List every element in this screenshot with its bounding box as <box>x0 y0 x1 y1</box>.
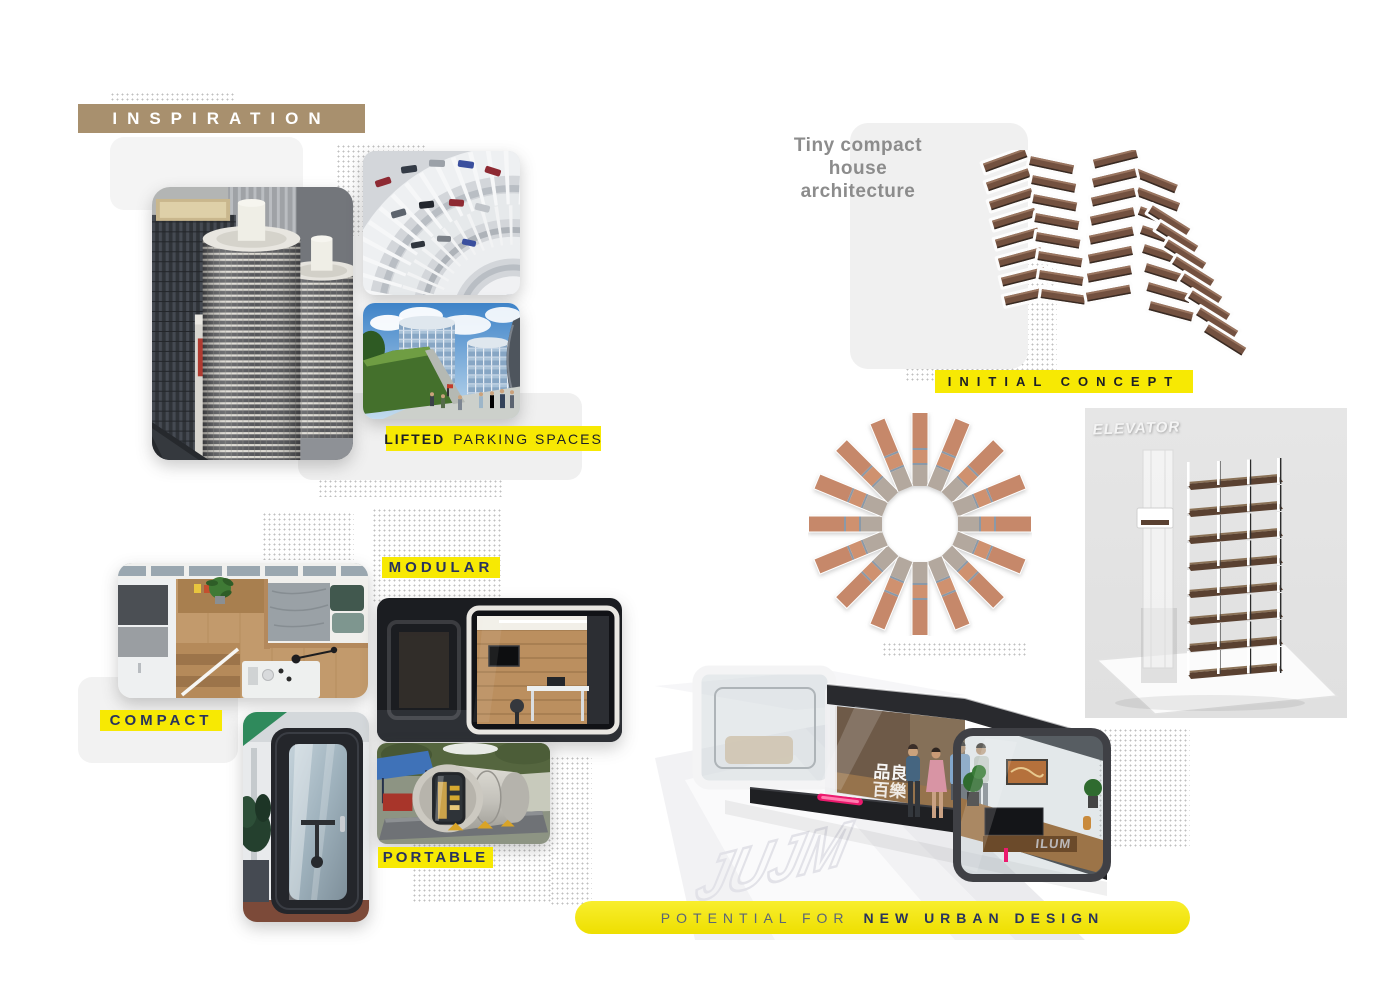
compact-label: COMPACT <box>100 710 222 731</box>
cjk-line-2: 百樂 <box>872 779 908 802</box>
booth-body <box>271 728 363 914</box>
lifted-label-bold: LIFTED <box>384 431 445 447</box>
container-home-illustration: JUJM 品良 <box>655 640 1200 940</box>
container-module-front <box>949 732 1107 878</box>
dot-texture <box>262 512 354 560</box>
phone-booth-illustration <box>243 712 369 922</box>
tiny-compact-note: Tiny compact house architecture <box>788 134 928 203</box>
container-module-back <box>697 670 832 785</box>
inspiration-section-banner: INSPIRATION <box>78 104 365 133</box>
stacked-units-illustration <box>952 150 1262 365</box>
render-initial-concept-stacks <box>952 150 1262 365</box>
elevator-label: ELEVATOR <box>1092 418 1182 438</box>
photo-circular-car-park <box>363 151 520 295</box>
brand-text: ILUM <box>1035 836 1072 851</box>
modular-label: MODULAR <box>382 557 500 578</box>
portable-label: PORTABLE <box>378 847 493 868</box>
autostadt-illustration <box>363 303 520 419</box>
banner-light-text: POTENTIAL FOR <box>661 910 850 926</box>
office-cube <box>469 608 617 732</box>
note-line-2: house <box>788 157 928 180</box>
initial-concept-text: INITIAL CONCEPT <box>948 374 1180 389</box>
banner-bold-text: NEW URBAN DESIGN <box>864 910 1105 926</box>
initial-concept-label: INITIAL CONCEPT <box>935 370 1193 393</box>
dot-texture <box>110 92 235 102</box>
glass-tower <box>467 337 509 394</box>
stairs-top-view <box>176 643 240 698</box>
dot-texture <box>372 508 502 602</box>
compact-label-text: COMPACT <box>110 712 213 729</box>
marina-city-illustration <box>152 187 353 460</box>
photo-compact-apartment <box>118 563 368 698</box>
portfolio-page: INSPIRATION <box>0 0 1400 991</box>
pipe-house-illustration <box>377 743 550 844</box>
photo-pipe-house <box>377 743 550 844</box>
cjk-signage: 品良 百樂 <box>872 761 910 802</box>
magenta-light-bar <box>1004 848 1008 862</box>
portable-label-text: PORTABLE <box>383 849 488 866</box>
pipe <box>412 764 529 832</box>
urban-design-banner: POTENTIAL FOR NEW URBAN DESIGN <box>575 901 1190 934</box>
photo-modular-office-cube <box>377 598 622 742</box>
photo-marina-city-towers <box>152 187 353 460</box>
render-urban-container-home: JUJM 品良 <box>655 640 1200 940</box>
note-line-3: architecture <box>788 180 928 203</box>
modular-label-text: MODULAR <box>389 559 494 576</box>
render-radial-unit-plan <box>808 412 1032 636</box>
radial-plan-illustration <box>808 412 1032 636</box>
car-park-illustration <box>363 151 520 295</box>
elevator-arrow-down-icon <box>1113 442 1153 494</box>
inspiration-title: INSPIRATION <box>112 109 330 129</box>
modular-cube-illustration <box>377 598 622 742</box>
photo-autostadt-towers <box>363 303 520 419</box>
lifted-parking-spaces-label: LIFTED PARKING SPACES <box>386 426 601 451</box>
lifted-label-rest: PARKING SPACES <box>453 431 603 447</box>
dot-texture <box>550 756 592 906</box>
compact-apartment-illustration <box>118 563 368 698</box>
note-line-1: Tiny compact <box>788 134 928 157</box>
photo-phone-booth-pod <box>243 712 369 922</box>
